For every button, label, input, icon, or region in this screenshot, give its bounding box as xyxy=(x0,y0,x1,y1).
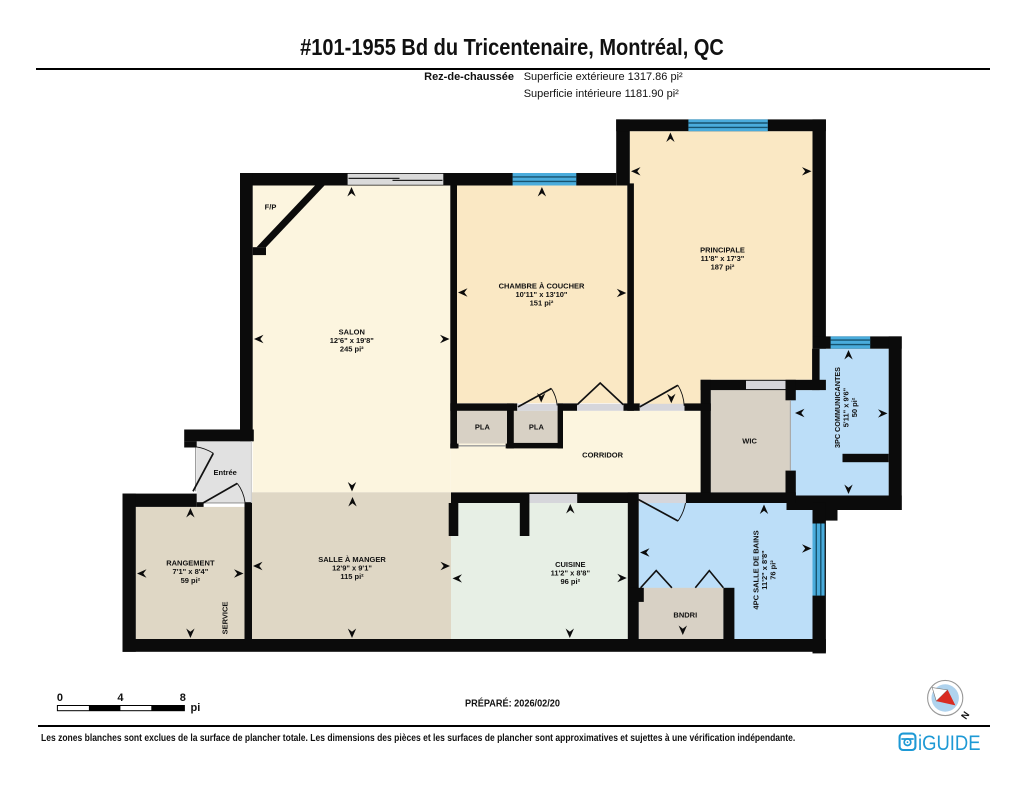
svg-text:SERVICE: SERVICE xyxy=(221,602,230,635)
svg-text:pi: pi xyxy=(191,702,201,714)
svg-text:96 pi²: 96 pi² xyxy=(561,577,581,586)
svg-text:Entrée: Entrée xyxy=(214,468,237,477)
svg-text:4: 4 xyxy=(117,692,124,704)
svg-text:N: N xyxy=(958,709,971,721)
svg-text:151 pi²: 151 pi² xyxy=(530,299,554,308)
svg-text:50 pi²: 50 pi² xyxy=(850,397,859,417)
svg-text:187 pi²: 187 pi² xyxy=(711,263,735,272)
svg-text:WIC: WIC xyxy=(742,437,757,446)
svg-text:8: 8 xyxy=(180,692,186,704)
svg-text:PLA: PLA xyxy=(475,423,491,432)
svg-text:PRÉPARÉ: 2026/02/20: PRÉPARÉ: 2026/02/20 xyxy=(465,697,560,710)
svg-text:76 pi²: 76 pi² xyxy=(769,560,778,580)
svg-text:0: 0 xyxy=(57,692,63,704)
svg-text:115 pi²: 115 pi² xyxy=(340,572,364,581)
svg-text:PLA: PLA xyxy=(529,423,545,432)
svg-text:245 pi²: 245 pi² xyxy=(340,345,364,354)
svg-text:iGUIDE: iGUIDE xyxy=(918,731,981,755)
svg-text:59 pi²: 59 pi² xyxy=(181,576,201,585)
svg-text:BNDRI: BNDRI xyxy=(673,611,697,620)
svg-text:F/P: F/P xyxy=(265,203,277,212)
svg-text:CORRIDOR: CORRIDOR xyxy=(582,451,623,460)
